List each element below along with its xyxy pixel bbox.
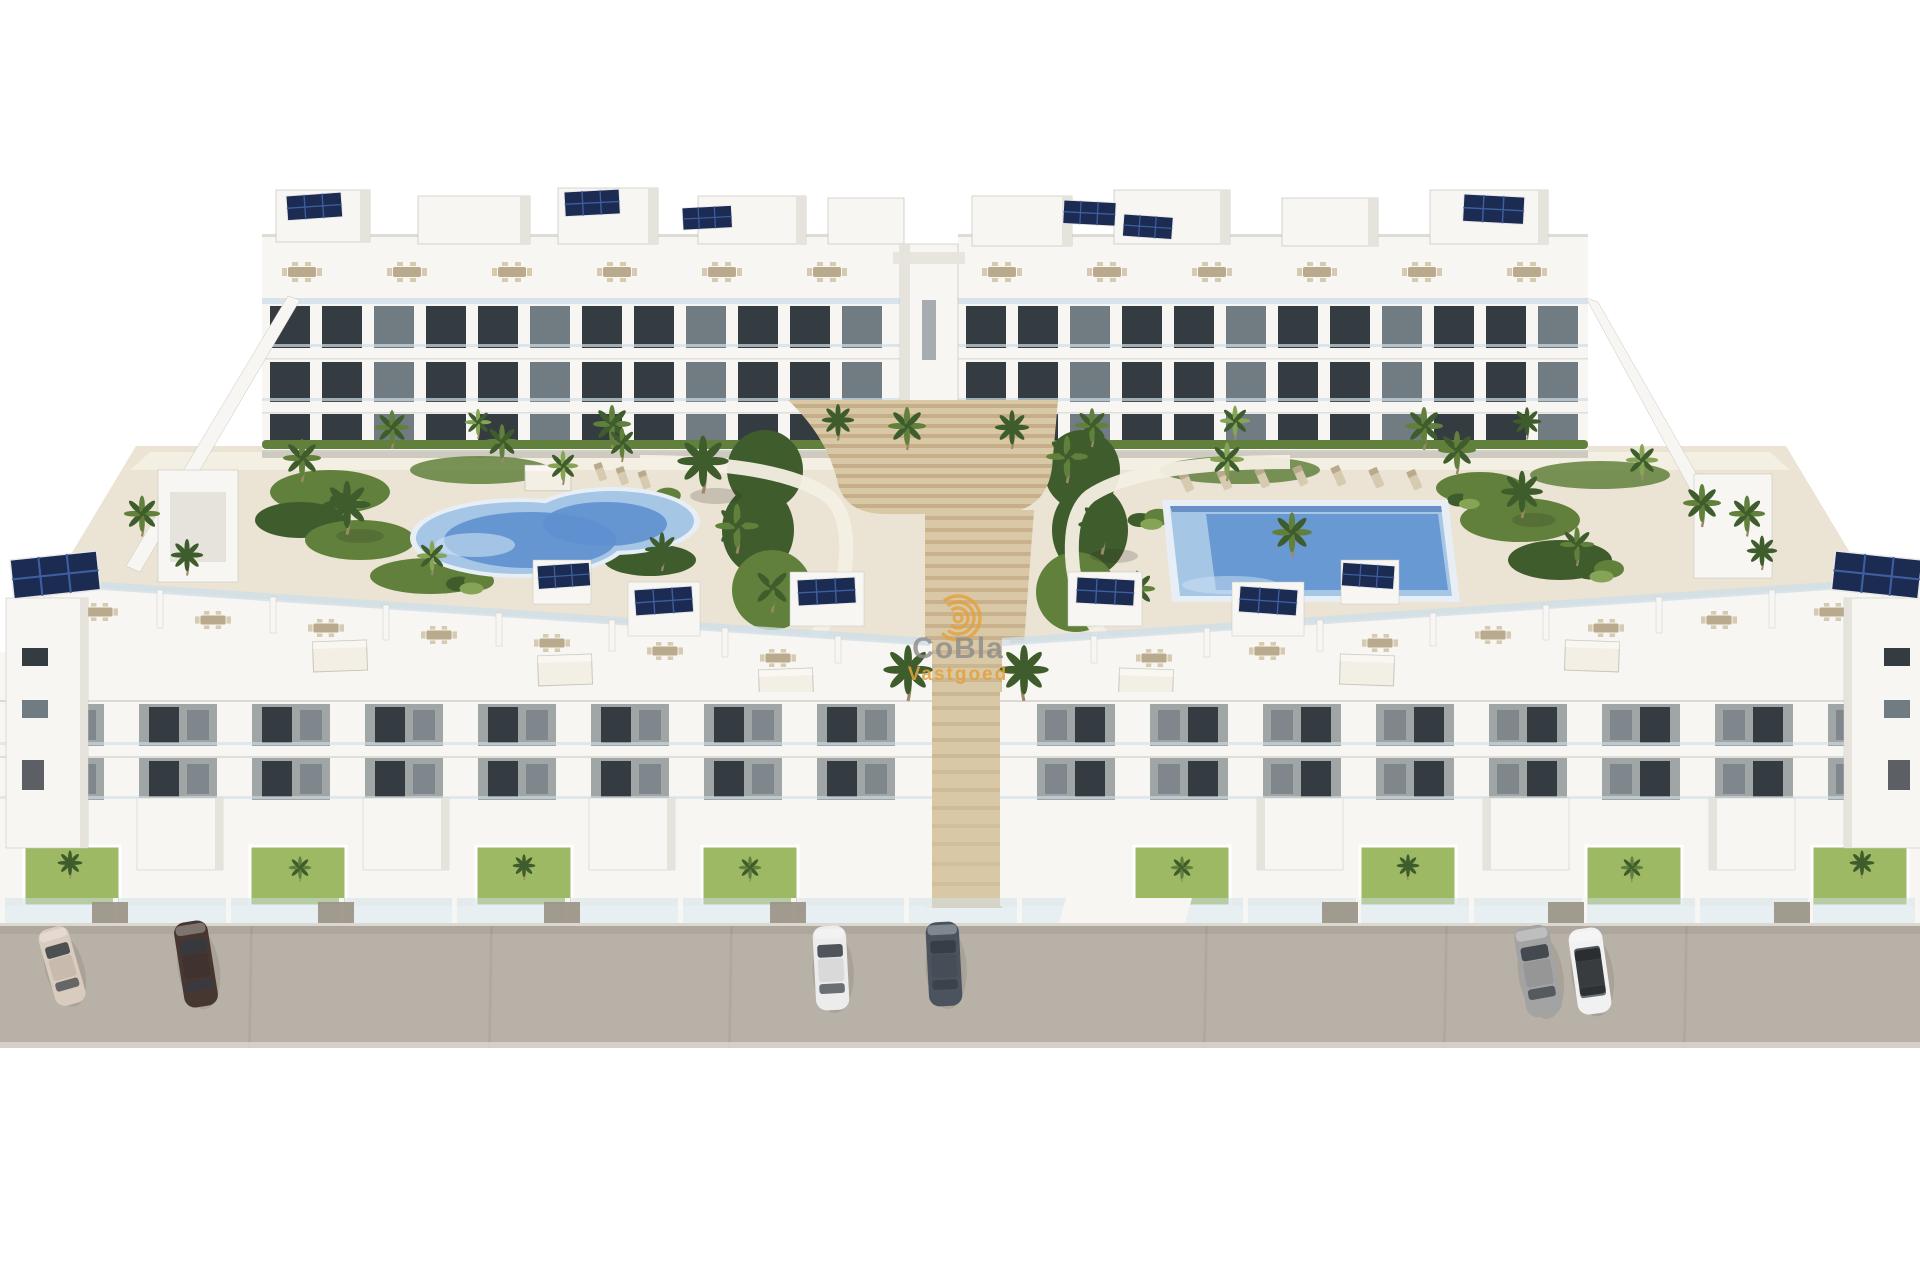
render-canvas: CoBla Vastgoed bbox=[0, 0, 1920, 1280]
street-fence bbox=[0, 898, 1920, 926]
solar-panel-array bbox=[286, 192, 343, 220]
solar-panel-array bbox=[682, 205, 732, 230]
watermark-subtitle: Vastgoed bbox=[908, 664, 1008, 685]
solar-panel-array bbox=[1122, 214, 1173, 239]
solar-panel-array bbox=[1463, 194, 1525, 224]
solar-panel-array bbox=[564, 189, 620, 217]
solar-panel-array bbox=[1063, 200, 1116, 226]
watermark-title: CoBla bbox=[912, 632, 1004, 665]
